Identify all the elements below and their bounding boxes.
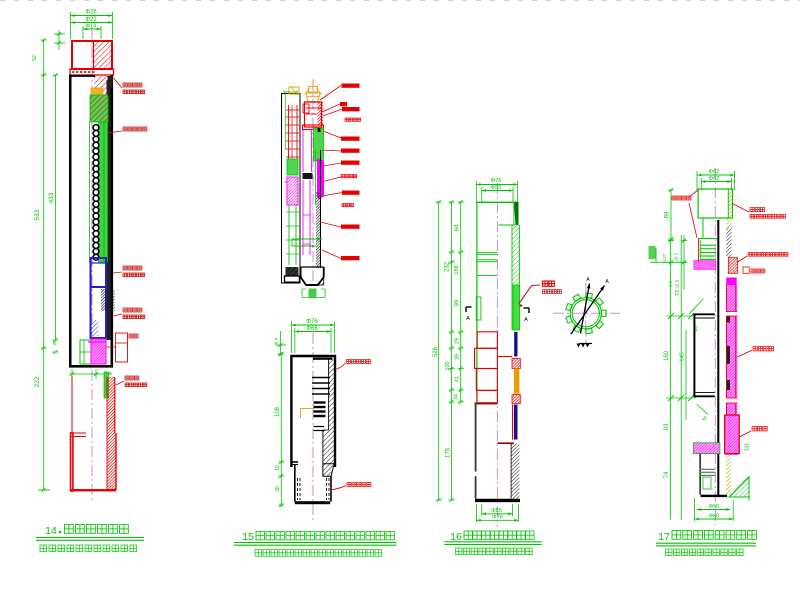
svg-text:A: A: [524, 317, 528, 323]
svg-text:Φ76: Φ76: [306, 319, 318, 325]
svg-text:145: 145: [680, 352, 686, 361]
svg-text:A: A: [605, 279, 609, 285]
svg-text:526: 526: [433, 346, 439, 357]
svg-text:14: 14: [45, 525, 57, 537]
svg-text:74: 74: [664, 471, 670, 478]
svg-text:15: 15: [275, 465, 281, 471]
svg-text:6.4: 6.4: [274, 337, 279, 344]
svg-text:Φ62: Φ62: [708, 169, 719, 175]
svg-text:1.27: 1.27: [662, 253, 667, 262]
svg-text:108: 108: [275, 406, 281, 417]
svg-text:16: 16: [450, 531, 462, 543]
svg-text:60: 60: [701, 414, 708, 421]
svg-text:15: 15: [242, 531, 254, 543]
svg-text:131: 131: [745, 443, 751, 452]
svg-text:Φ76: Φ76: [492, 515, 503, 521]
svg-text:29: 29: [455, 338, 461, 344]
svg-text:Φ26: Φ26: [85, 10, 97, 16]
svg-text:35: 35: [52, 340, 57, 346]
svg-text:100: 100: [445, 361, 451, 370]
svg-text:533: 533: [34, 209, 41, 220]
svg-text:160: 160: [664, 350, 670, 361]
svg-text:72: 72: [675, 290, 681, 296]
svg-text:433: 433: [48, 192, 55, 203]
svg-text:17: 17: [658, 531, 670, 543]
svg-text:26.2: 26.2: [674, 252, 679, 261]
svg-text:93: 93: [664, 423, 670, 430]
svg-text:99: 99: [455, 299, 461, 306]
svg-text:175: 175: [446, 447, 452, 458]
svg-text:Φ22: Φ22: [85, 17, 97, 23]
svg-text:34: 34: [454, 394, 460, 400]
svg-text:188: 188: [454, 265, 460, 274]
svg-text:52: 52: [32, 55, 38, 61]
svg-text:28: 28: [275, 486, 281, 492]
svg-text:A: A: [586, 277, 590, 283]
svg-text:Φ55: Φ55: [491, 508, 502, 514]
svg-text:69: 69: [665, 211, 671, 218]
svg-text:39: 39: [455, 354, 461, 360]
svg-text:6.3: 6.3: [668, 280, 673, 286]
svg-text:222: 222: [34, 376, 41, 387]
svg-text:Φ76: Φ76: [490, 178, 501, 184]
svg-text:94: 94: [455, 224, 461, 231]
svg-text:16.5: 16.5: [675, 279, 680, 288]
svg-text:A: A: [466, 316, 470, 322]
svg-text:41: 41: [455, 376, 461, 382]
svg-text:232: 232: [445, 261, 451, 272]
